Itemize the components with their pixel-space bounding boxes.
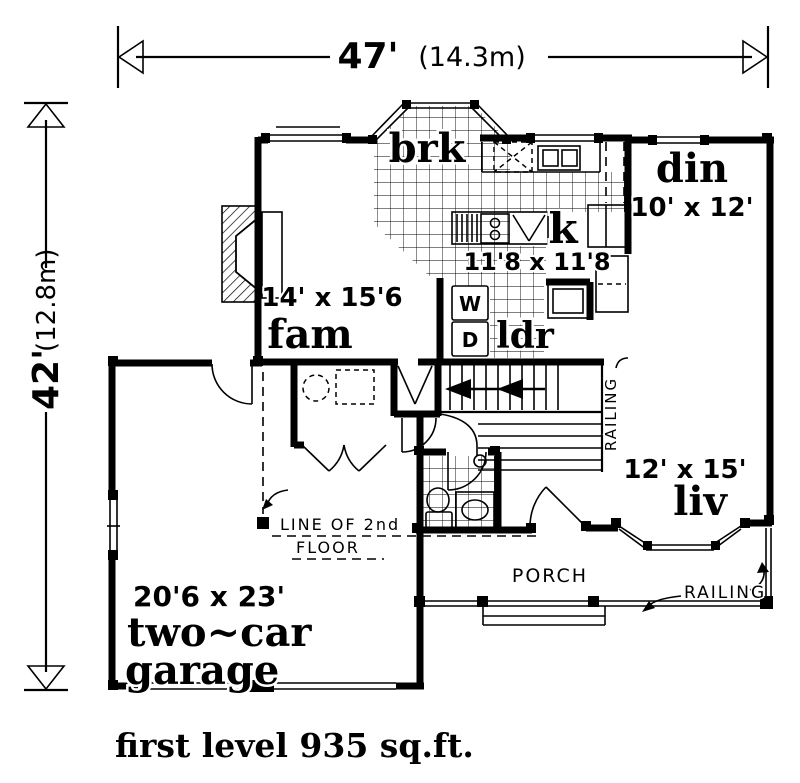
family-window xyxy=(266,127,348,141)
porch-post xyxy=(414,596,425,607)
dim-height-feet: 42' xyxy=(26,349,67,410)
washer-letter: W xyxy=(459,292,481,316)
stair-direction-arrow xyxy=(445,379,545,399)
prep-sink xyxy=(513,215,545,241)
living-bay-windows xyxy=(616,524,744,550)
second-floor-text-2: FLOOR xyxy=(296,538,360,557)
plan-caption: first level 935 sq.ft. xyxy=(115,726,474,765)
floor-plan-drawing: 47' (14.3m) 42' (12.8m) xyxy=(0,0,800,783)
closet-bifold-doors xyxy=(398,366,432,404)
garage-label-line2: garage xyxy=(125,647,279,694)
dryer-letter: D xyxy=(462,328,479,352)
dim-width-feet: 47' xyxy=(337,36,398,77)
garage-entry-door xyxy=(212,364,252,404)
porch-railing-label: RAILING xyxy=(684,583,766,603)
porch-post xyxy=(477,596,488,607)
dim-width-meters: (14.3m) xyxy=(418,42,526,73)
laundry-label: ldr xyxy=(496,315,555,357)
dimension-left: 42' (12.8m) xyxy=(24,103,68,690)
powder-sink xyxy=(303,375,329,401)
living-label: liv xyxy=(673,478,728,525)
dining-label: din xyxy=(656,145,728,192)
garage-window xyxy=(107,498,120,554)
dining-size: 10' x 12' xyxy=(630,193,753,223)
dining-window xyxy=(652,137,704,143)
dimension-top: 47' (14.3m) xyxy=(118,26,768,88)
powder-double-doors xyxy=(302,445,386,471)
porch-label: PORCH xyxy=(512,565,588,587)
kitchen-label: k xyxy=(548,204,578,253)
front-door xyxy=(530,487,586,527)
family-size: 14' x 15'6 xyxy=(261,283,402,313)
powder-room-fixtures xyxy=(303,370,374,404)
dim-height-meters: (12.8m) xyxy=(32,248,62,352)
family-label: fam xyxy=(267,311,352,358)
floor-plan-page: 47' (14.3m) 42' (12.8m) xyxy=(0,0,800,783)
stairs xyxy=(438,358,628,472)
shower-stall xyxy=(336,370,374,404)
stair-railing-label: RAILING xyxy=(602,377,620,451)
porch-steps xyxy=(483,606,605,625)
breakfast-label: brk xyxy=(389,125,467,172)
railing-pointer-hook xyxy=(616,358,628,368)
kitchen-size: 11'8 x 11'8 xyxy=(463,248,610,276)
porch-post xyxy=(588,596,599,607)
kitchen-window xyxy=(530,135,600,141)
second-floor-marker xyxy=(257,517,269,529)
second-floor-text-1: LINE OF 2nd xyxy=(280,515,400,534)
